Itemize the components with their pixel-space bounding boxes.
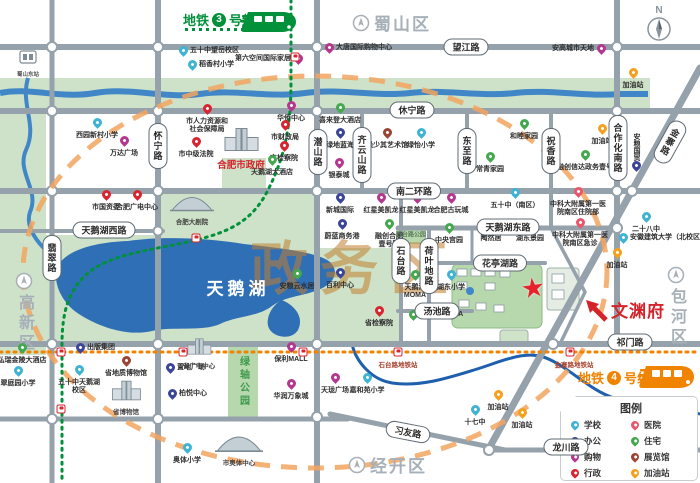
legend-item-label: 购物 — [584, 451, 601, 463]
road-label-汤池路: 汤池路 — [414, 303, 459, 320]
north-compass-icon — [646, 16, 672, 42]
hospital-pin-icon — [629, 419, 640, 430]
school-pin-icon — [177, 44, 190, 57]
project-location-star: ★ — [519, 271, 547, 305]
poi-label: 中科大附属第一医院南区住院部 — [549, 201, 607, 217]
poi-label: 第六空间国际家居 — [235, 55, 291, 63]
poi-label: 银泰城 — [329, 172, 350, 180]
road-label-祝香路: 祝香路 — [542, 128, 561, 174]
gas-pin-icon — [516, 406, 529, 419]
road-label-龙川路: 龙川路 — [543, 439, 588, 456]
legend-item-行政: 行政 — [571, 466, 631, 480]
school-pin-icon — [186, 58, 199, 71]
shop-pin-icon — [375, 191, 388, 204]
shop-pin-icon — [333, 156, 346, 169]
park-label: 石台路公园 — [396, 230, 426, 239]
shop-pin-icon — [323, 41, 336, 54]
legend-item-label: 住宅 — [644, 435, 661, 447]
poi-label: 加油站 — [623, 82, 644, 90]
poi-label: 天珑广场 — [321, 387, 349, 395]
poi-label: 市中级法院 — [179, 151, 214, 159]
poi-label: 华润万象城 — [274, 393, 309, 401]
project-name: 文渊府 — [611, 297, 665, 322]
compass-icon — [667, 266, 685, 284]
road-label-齐云山路: 齐云山路 — [353, 127, 372, 183]
office-pin-icon — [166, 387, 179, 400]
poi-label: 中科大附属第一医院南区急诊 — [551, 232, 609, 248]
building-label: 省广电中心 — [183, 360, 216, 370]
home-pin-icon — [334, 101, 347, 114]
shushan-east-station: 蜀山东站 — [17, 50, 39, 78]
poi-label: 安粮国贸 — [632, 133, 640, 161]
expo-pin-icon — [120, 354, 133, 367]
poi-label: 赖少其艺术馆 — [366, 142, 408, 150]
poi-label: 蔚蓝商务港 — [325, 233, 360, 241]
hospital-pin-icon — [572, 185, 585, 198]
gov-pin-icon — [190, 135, 203, 148]
office-pin-icon — [334, 126, 347, 139]
home-pin-icon — [484, 150, 497, 163]
building-icon — [170, 193, 214, 218]
poi-label: 加油站 — [512, 422, 533, 430]
road-label-翡翠路: 翡翠路 — [43, 235, 62, 281]
school-pin-icon — [640, 210, 653, 223]
poi-label: 五十中天鹅湖校区 — [56, 379, 102, 395]
expo-pin-icon — [381, 126, 394, 139]
building-icon — [109, 379, 143, 408]
building-icon — [221, 126, 261, 159]
gas-pin-icon — [611, 246, 624, 259]
legend-item-label: 医院 — [644, 419, 661, 431]
home-pin-icon — [629, 435, 640, 446]
poi-label: 加油站 — [488, 404, 509, 412]
office-pin-icon — [630, 159, 643, 172]
road-label-休宁路: 休宁路 — [389, 102, 434, 119]
project-logo: 文渊府 — [584, 297, 665, 322]
home-pin-icon — [383, 217, 396, 230]
gas-pin-icon — [629, 467, 640, 478]
building-label: 合肥大剧院 — [176, 216, 209, 226]
school-pin-icon — [91, 116, 104, 129]
map-canvas: 政务区 天鹅湖 蜀山区 高新区 包河区 经开区 地铁3号线 — [0, 0, 700, 483]
poi-label: 陶然居 — [481, 235, 502, 243]
legend-item-label: 展览馆 — [644, 451, 670, 463]
poi-label: 常青家园 — [476, 166, 504, 174]
poi-label: 弘瑞金陵大酒店 — [0, 357, 47, 365]
poi-label: 加油站 — [607, 262, 628, 270]
office-pin-icon — [334, 266, 347, 279]
poi-label: 奥体小学 — [173, 457, 201, 465]
poi-label: 大唐国际购物中心 — [336, 44, 392, 52]
gov-pin-icon — [373, 304, 386, 317]
gas-pin-icon — [596, 122, 609, 135]
line4-number-badge: 4 — [607, 371, 621, 385]
gov-pin-icon — [201, 102, 214, 115]
poi-label: 百利中心 — [326, 282, 354, 290]
building-label: 省博物馆 — [113, 406, 139, 416]
office-pin-icon — [164, 361, 177, 374]
legend-item-住宅: 住宅 — [631, 434, 691, 448]
poi-label: 红星美凯龙 — [364, 207, 399, 215]
road-label-望江路: 望江路 — [443, 39, 488, 56]
line3-number-badge: 3 — [212, 13, 226, 27]
road-label-习友路: 习友路 — [384, 419, 431, 444]
gov-pin-icon — [100, 188, 113, 201]
poi-label: 湖东景园 — [516, 235, 544, 243]
school-pin-icon — [617, 231, 630, 244]
poi-label: 稻香村小学 — [199, 61, 234, 69]
poi-label: 新城国际 — [326, 207, 354, 215]
metro-station-icon-7 — [57, 405, 66, 414]
building-label: 市奥体中心 — [223, 457, 256, 467]
compass-icon — [348, 456, 366, 474]
school-pin-icon — [509, 186, 522, 199]
poi-label: 翠庭园小学 — [1, 380, 36, 388]
road-label-荷叶地路: 荷叶地路 — [420, 238, 439, 294]
poi-label: 安高城市天地 — [552, 45, 594, 53]
gas-pin-icon — [627, 66, 640, 79]
home-pin-icon — [518, 117, 531, 130]
gas-pin-icon — [492, 388, 505, 401]
legend-item-学校: 学校 — [571, 418, 631, 432]
metro-station-icon-1 — [192, 234, 201, 243]
shop-pin-icon — [595, 42, 608, 55]
metro-station-label: 石台路地铁站 — [379, 359, 418, 369]
office-pin-icon — [336, 217, 349, 230]
road-label-潜山路: 潜山路 — [309, 129, 328, 175]
road-label-合作化南路: 合作化南路 — [609, 115, 628, 181]
poi-label: 五十中（南区） — [491, 202, 540, 210]
hospital-pin-icon — [574, 216, 587, 229]
school-pin-icon — [415, 126, 428, 139]
park-label: 绿轴公园 — [236, 356, 251, 408]
metro-station-icon-0 — [291, 53, 300, 62]
poi-label: 万达广场 — [110, 150, 138, 158]
poi-label: 省地质博物馆 — [105, 370, 147, 378]
road-label-花亭湖路: 花亭湖路 — [473, 255, 527, 272]
poi-label: 绿怡小学 — [407, 142, 435, 150]
metro-station-icon-6 — [566, 348, 575, 357]
school-pin-icon — [445, 268, 458, 281]
district-shushan: 蜀山区 — [352, 10, 431, 35]
legend-items: 学校医院办公住宅购物展览馆行政加油站 — [571, 418, 691, 480]
gov-pin-icon — [569, 467, 580, 478]
legend-title: 图例 — [571, 400, 691, 416]
road-label-天鹅湖东路: 天鹅湖东路 — [476, 219, 539, 236]
road-label-怀宁路: 怀宁路 — [149, 123, 168, 169]
legend-item-医院: 医院 — [631, 418, 691, 432]
home-pin-icon — [579, 148, 592, 161]
poi-label: 出版集团 — [87, 344, 115, 352]
legend-item-加油站: 加油站 — [631, 466, 691, 480]
poi-label: 五十中望岳校区 — [190, 47, 239, 55]
metro3-train-icon — [240, 6, 298, 36]
building-icon — [215, 432, 263, 459]
office-pin-icon — [74, 341, 87, 354]
poi-label: 嘉和苑小学 — [350, 387, 385, 395]
poi-label: 西园新村小学 — [76, 132, 118, 140]
shop-pin-icon — [118, 134, 131, 147]
poi-label: 喜来登大酒店 — [319, 117, 361, 125]
expo-pin-icon — [629, 451, 640, 462]
rail-station-icon — [19, 50, 37, 65]
road-label-南二环路: 南二环路 — [387, 183, 441, 200]
project-arrow-icon — [584, 298, 608, 322]
school-pin-icon — [469, 403, 482, 416]
home-pin-icon — [291, 267, 304, 280]
school-pin-icon — [73, 363, 86, 376]
shop-pin-icon — [445, 191, 458, 204]
metro-station-label: 金寨路地铁站 — [555, 359, 594, 369]
poi-label: 绿地蓝海 — [326, 142, 354, 150]
poi-label: 保利MALL — [274, 356, 307, 364]
road-label-祁门路: 祁门路 — [607, 334, 652, 351]
poi-label: 合肥广电中心 — [116, 204, 158, 212]
legend-item-label: 学校 — [584, 419, 601, 431]
poi-label: 湖东小学 — [437, 284, 465, 292]
legend-item-label: 行政 — [584, 467, 601, 479]
shop-pin-icon — [285, 340, 298, 353]
school-pin-icon — [569, 419, 580, 430]
district-baohe: 包河区 — [664, 266, 688, 348]
metro-station-icon-2 — [57, 348, 66, 357]
home-pin-icon — [443, 221, 456, 234]
poi-label: 十七中 — [465, 419, 486, 427]
metro4-train-icon — [636, 358, 696, 392]
office-pin-icon — [334, 191, 347, 204]
shop-pin-icon — [285, 99, 298, 112]
poi-label: 安徽建筑大学（北校区） — [630, 234, 700, 242]
road-label-石台路: 石台路 — [392, 238, 411, 284]
poi-label: 柏悦中心 — [179, 390, 207, 398]
north-compass: N — [646, 5, 672, 47]
poi-label: 安粮云水居 — [280, 283, 315, 291]
poi-label: 中央宫园 — [435, 237, 463, 245]
road-label-金寨路: 金寨路 — [651, 117, 690, 166]
road-label-东至路: 东至路 — [458, 128, 477, 174]
legend-item-展览馆: 展览馆 — [631, 450, 691, 464]
poi-label: 和睦家园 — [510, 133, 538, 141]
lake-label: 天鹅湖 — [207, 275, 270, 300]
poi-label: 融创信达政务壹号 — [557, 164, 613, 172]
district-jingkai: 经开区 — [348, 452, 427, 477]
legend-item-label: 加油站 — [644, 467, 670, 479]
metro-station-icon-4 — [299, 348, 308, 357]
poi-label: 二十八中 — [632, 226, 660, 234]
district-gaoxin: 高新区 — [12, 272, 36, 354]
school-pin-icon — [361, 371, 374, 384]
metro-station-icon-5 — [394, 348, 403, 357]
compass-icon — [15, 272, 33, 290]
building-icon — [185, 337, 213, 362]
school-pin-icon — [12, 364, 25, 377]
gov-pin-icon — [131, 188, 144, 201]
shop-pin-icon — [285, 377, 298, 390]
road-label-天鹅湖西路: 天鹅湖西路 — [72, 222, 135, 239]
school-pin-icon — [181, 441, 194, 454]
building-label: 合肥市政府 — [217, 157, 265, 171]
poi-label: 合肥古玩城 — [434, 207, 469, 215]
poi-label: 红星美凯龙 — [400, 207, 435, 215]
shop-pin-icon — [329, 371, 342, 384]
poi-label: 省检察院 — [365, 320, 393, 328]
metro3-dotted-underline — [185, 28, 245, 31]
compass-icon — [352, 14, 370, 32]
